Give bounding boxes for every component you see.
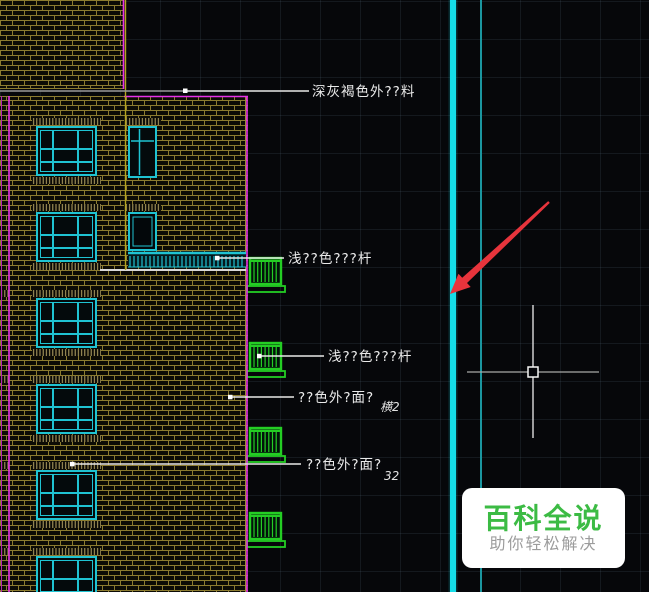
leader-dot [183,89,188,94]
leader-dot [257,354,262,359]
label-railing-lower: 浅??色???杆 [328,348,412,365]
window[interactable] [37,471,96,519]
window[interactable] [37,385,96,433]
window[interactable] [37,557,96,592]
watermark-title: 百科全说 [483,505,603,533]
guide-line-bright[interactable] [450,0,456,592]
label-facade-material: 深灰褐色外??料 [312,83,415,100]
balcony-door[interactable] [129,213,156,250]
pickbox [528,367,538,377]
label-wall-finish-1: ??色外?面? [298,389,374,406]
label-wall-finish-1-suffix: 横2 [380,400,400,414]
window[interactable] [37,213,96,261]
crosshair-cursor [467,305,599,438]
green-balcony[interactable] [247,513,285,547]
green-balcony[interactable] [247,343,285,377]
upper-wall[interactable] [0,0,124,89]
label-wall-finish-2-suffix: 32 [384,469,399,483]
watermark-subtitle: 助你轻松解决 [489,536,597,552]
leader-dot [215,256,220,260]
balconies-green[interactable] [247,258,285,547]
window[interactable] [37,127,96,175]
label-railing-upper: 浅??色???杆 [288,250,372,267]
window[interactable] [37,299,96,347]
leader-dot [70,462,75,467]
cad-viewport[interactable]: 深灰褐色外??料 浅??色???杆 浅??色???杆 ??色外?面? 横2 ??… [0,0,649,592]
label-wall-finish-2: ??色外?面? [306,456,382,473]
narrow-window[interactable] [129,127,156,177]
watermark-badge: 百科全说 助你轻松解决 [462,488,625,568]
red-arrow-icon [450,201,550,294]
green-balcony[interactable] [247,258,285,292]
leader-dot [228,395,233,400]
green-balcony[interactable] [247,428,285,462]
